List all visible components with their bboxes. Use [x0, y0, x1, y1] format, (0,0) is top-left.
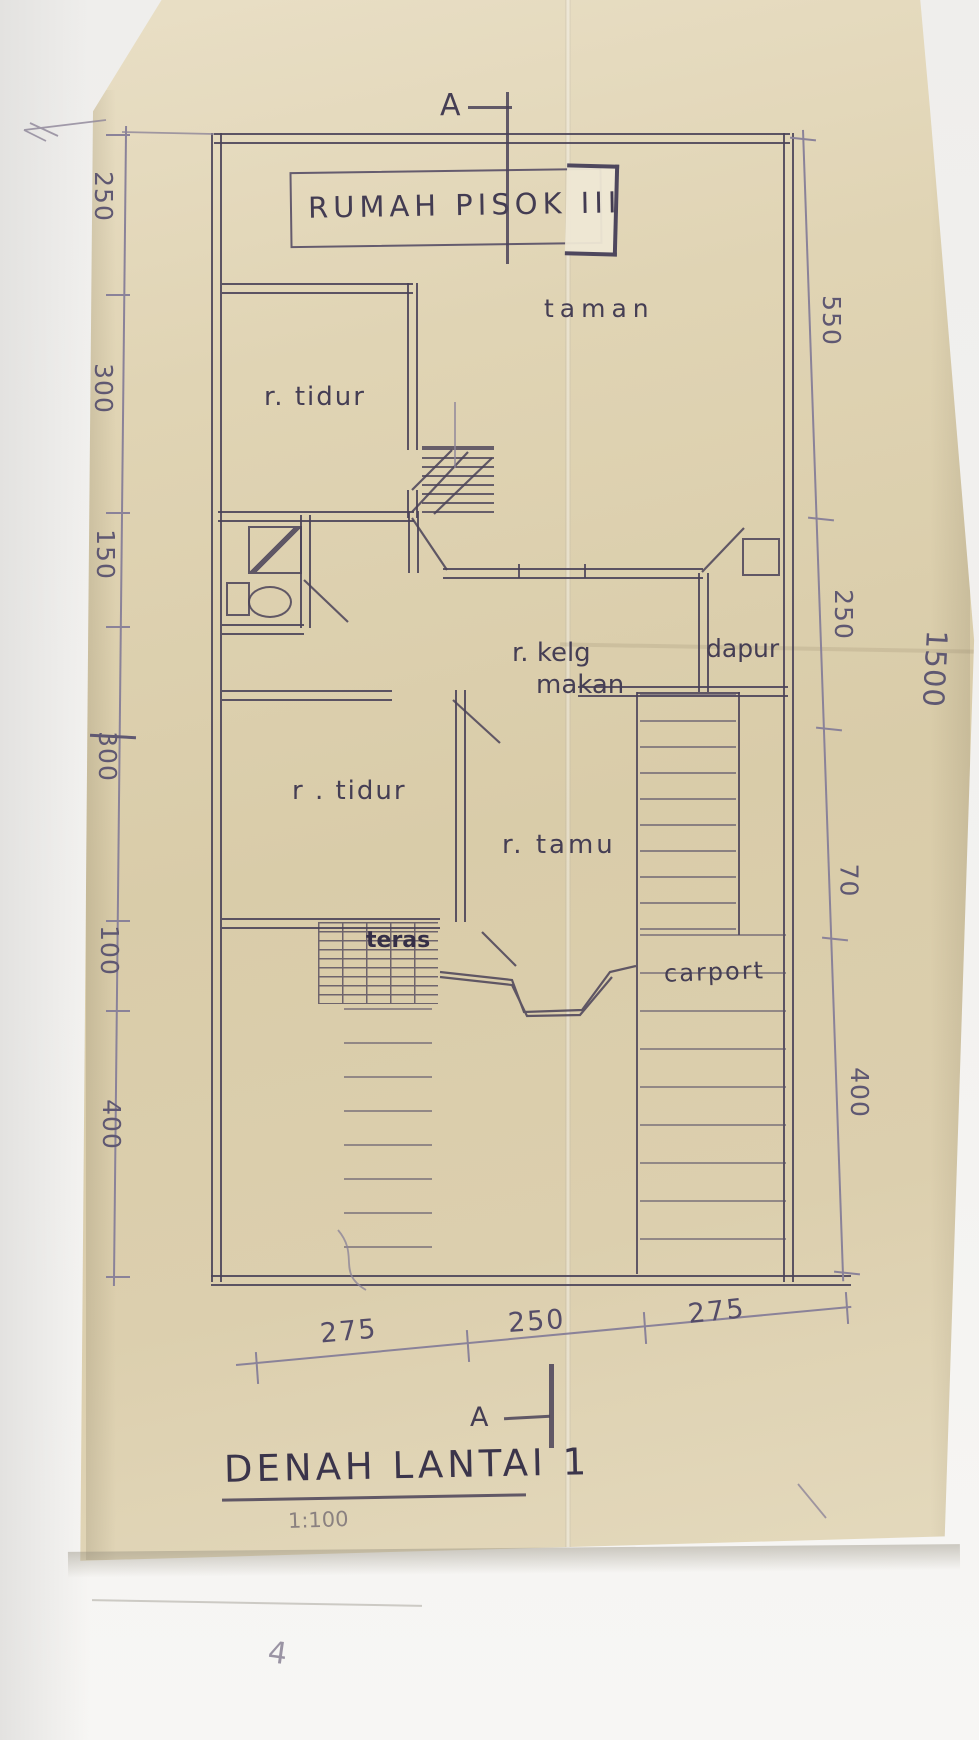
dim-label-left-5: 100: [95, 925, 124, 976]
room-label-terrace: teras: [366, 928, 430, 953]
dim-label-right-2: 250: [829, 589, 858, 640]
dim-tick: [106, 1276, 130, 1278]
section-line-bottom: [549, 1364, 554, 1448]
dim-tick: [106, 626, 130, 628]
shower-fixture: [248, 526, 302, 574]
dim-tick: [816, 727, 842, 732]
toilet-tank: [226, 582, 250, 616]
dim-tick: [106, 1010, 130, 1012]
window-tick: [518, 564, 520, 578]
title-underline: [222, 1493, 526, 1501]
stair-treads: [640, 694, 736, 934]
room-label-bedroom-lower: r . tidur: [292, 776, 407, 806]
dim-tick: [106, 294, 130, 296]
room-label-family-room: r. kelg: [512, 638, 591, 668]
paper-right-edge-shade: [930, 100, 970, 1540]
wall-segment: [222, 624, 304, 635]
wall-segment: [211, 133, 222, 1282]
drawing-scale: 1:100: [288, 1507, 349, 1533]
plan-title: RUMAH PISOK III: [308, 185, 622, 224]
wall-segment: [455, 690, 466, 922]
dim-tick: [466, 1330, 470, 1362]
wall-segment: [222, 283, 413, 294]
dim-tick: [255, 1352, 259, 1384]
paper-left-edge-shade: [86, 90, 116, 1560]
wall-segment: [408, 511, 419, 573]
dim-tick: [106, 134, 130, 136]
wall-segment: [218, 511, 414, 522]
dim-tick: [845, 1292, 849, 1324]
toilet-fixture: [248, 586, 292, 618]
overall-dim-right: 1500: [916, 629, 954, 708]
room-label-dining: makan: [536, 670, 624, 700]
dim-label-right-4: 400: [845, 1067, 874, 1118]
dim-label-left-4: 300: [93, 731, 122, 782]
dim-label-left-6: 400: [97, 1099, 126, 1150]
dim-label-left-1: 250: [89, 171, 118, 222]
stair-hatch: [422, 446, 494, 514]
room-label-carport: carport: [664, 956, 766, 988]
stair-edge: [738, 692, 740, 935]
overall-dim-left: 1500: [36, 675, 81, 759]
window-tick: [584, 564, 586, 578]
dim-tick: [106, 920, 130, 922]
section-marker-bottom: A: [470, 1402, 488, 1433]
wall-segment: [211, 1275, 851, 1286]
dim-label-left-3: 150: [91, 529, 120, 580]
dim-tick: [106, 512, 130, 514]
dim-label-left-2: 300: [89, 363, 118, 414]
wall-segment: [214, 133, 790, 144]
dim-label-bottom-2: 250: [507, 1304, 567, 1339]
dim-label-right-1: 550: [817, 295, 846, 346]
room-label-living: r. tamu: [502, 830, 616, 860]
dim-tick: [822, 937, 848, 942]
wall-segment: [222, 690, 392, 701]
section-bar-bottom: [504, 1415, 550, 1420]
dim-tick: [643, 1312, 647, 1344]
room-label-garden: taman: [544, 294, 655, 323]
dim-tick: [808, 517, 834, 522]
wall-segment: [698, 573, 709, 692]
backing-paper-crease: [92, 1599, 422, 1607]
dim-label-bottom-3: 275: [687, 1293, 747, 1330]
drawing-title: DENAH LANTAI 1: [224, 1440, 591, 1491]
section-bar-top: [468, 106, 512, 109]
room-label-kitchen: dapur: [706, 634, 779, 663]
kitchen-sink-fixture: [742, 538, 780, 576]
photographed-floor-plan: RUMAH PISOK III A taman r. tidur r. kelg…: [0, 0, 979, 1740]
path-paving: [344, 1008, 432, 1276]
dim-label-bottom-1: 275: [319, 1314, 379, 1350]
stair-edge: [636, 692, 638, 1274]
dim-label-right-3: 70: [834, 864, 863, 898]
section-marker-top: A: [440, 88, 461, 123]
room-label-bedroom-upper: r. tidur: [264, 382, 366, 412]
wall-segment: [443, 568, 703, 579]
pencil-corner-mark: 4: [266, 1635, 290, 1672]
paper-sheet: RUMAH PISOK III A taman r. tidur r. kelg…: [0, 0, 979, 1740]
wall-segment: [407, 283, 418, 450]
section-line-top: [506, 92, 509, 264]
